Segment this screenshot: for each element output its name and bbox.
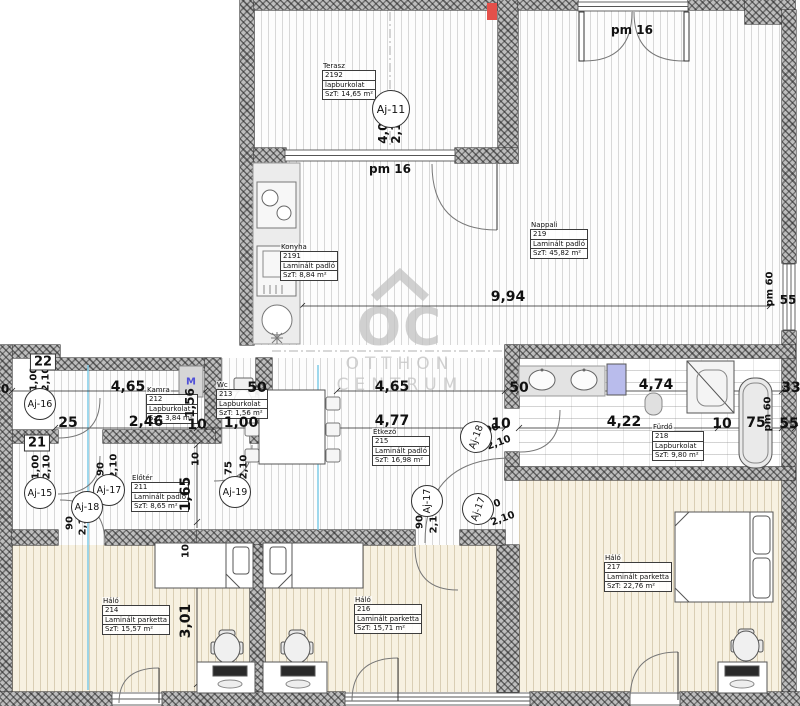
room-label-terasz: Terasz 2192 lapburkolat SzT: 14,65 m² bbox=[322, 62, 376, 100]
door-tag-aj16: Aj-16 bbox=[24, 388, 56, 420]
room-floor: lapburkolat bbox=[323, 80, 375, 89]
dim-label: 4,74 bbox=[639, 377, 674, 393]
room-number: 2192 bbox=[323, 71, 375, 79]
position-number-box: 21 bbox=[24, 435, 50, 452]
desk-chair-216 bbox=[263, 630, 327, 693]
room-name: Háló bbox=[354, 596, 372, 604]
desk-chair-217 bbox=[718, 629, 767, 693]
room-label-nappali: Nappali 219 Laminált padló SzT: 45,82 m² bbox=[530, 221, 588, 259]
dim-label: 2,46 bbox=[129, 414, 164, 430]
dim-label: 90 bbox=[65, 516, 76, 530]
dim-label: 4,77 bbox=[375, 413, 410, 429]
room-label-halo-214: Háló 214 Laminált parketta SzT: 15,57 m² bbox=[102, 597, 170, 635]
room-name: Terasz bbox=[322, 62, 346, 70]
bed-214 bbox=[155, 543, 253, 588]
dim-label: pm 60 bbox=[763, 397, 774, 432]
room-label-konyha: Konyha 2191 Laminált padló SzT: 8,84 m² bbox=[280, 243, 338, 281]
dim-label: pm 16 bbox=[611, 23, 653, 37]
room-name: Fürdő bbox=[652, 423, 674, 431]
room-floor: Laminált padló bbox=[531, 239, 587, 248]
door-tag-aj15: Aj-15 bbox=[24, 477, 56, 509]
room-number: 2191 bbox=[281, 252, 337, 260]
room-number: 217 bbox=[605, 563, 671, 571]
dim-label: 55 bbox=[779, 416, 798, 432]
room-area: SzT: 14,65 m² bbox=[323, 89, 375, 98]
room-floor: Lapburkolat bbox=[653, 441, 703, 450]
room-area: SzT: 45,82 m² bbox=[531, 248, 587, 257]
room-label-halo-217: Háló 217 Laminált parketta SzT: 22,76 m² bbox=[604, 554, 672, 592]
door-tag-aj18: Aj-18 bbox=[71, 491, 103, 523]
dim-label: 4,22 bbox=[607, 414, 642, 430]
door-tag-aj17: Aj-17 bbox=[411, 485, 443, 517]
dim-label: 10 bbox=[181, 544, 192, 558]
room-floor: Laminált padló bbox=[373, 446, 429, 455]
dim-label: 1,00 bbox=[31, 455, 42, 480]
dim-label: 0 bbox=[1, 382, 9, 396]
dim-label: 75 bbox=[224, 461, 235, 475]
floor-plan: OC OTTHON CENTRUM bbox=[0, 0, 800, 706]
washing-machine-label: M bbox=[186, 377, 196, 388]
room-number: 215 bbox=[373, 437, 429, 445]
room-number: 219 bbox=[531, 230, 587, 238]
door-tag-aj19: Aj-19 bbox=[219, 476, 251, 508]
room-number: 216 bbox=[355, 605, 421, 613]
room-name: Előtér bbox=[131, 474, 154, 482]
position-number-box: 22 bbox=[30, 354, 56, 371]
dim-label: 90 bbox=[415, 515, 426, 529]
dim-label: 4,65 bbox=[111, 379, 146, 395]
dim-label: 2,10 bbox=[239, 455, 250, 480]
room-name: Wc bbox=[216, 381, 229, 389]
room-number: 214 bbox=[103, 606, 169, 614]
desk-chair-214 bbox=[197, 630, 255, 693]
room-name: Kamra bbox=[146, 386, 171, 394]
room-floor: Laminált parketta bbox=[605, 572, 671, 581]
room-name: Háló bbox=[604, 554, 622, 562]
dim-label: 50 bbox=[509, 380, 528, 396]
room-area: SzT: 15,71 m² bbox=[355, 623, 421, 632]
dim-label: 10 bbox=[191, 452, 202, 466]
bed-217 bbox=[675, 512, 773, 602]
room-area: SzT: 15,57 m² bbox=[103, 624, 169, 633]
room-area: SzT: 8,84 m² bbox=[281, 270, 337, 279]
dim-label: 4,65 bbox=[375, 379, 410, 395]
room-label-halo-216: Háló 216 Laminált parketta SzT: 15,71 m² bbox=[354, 596, 422, 634]
room-area: SzT: 9,80 m² bbox=[653, 450, 703, 459]
dim-label: 10 bbox=[187, 417, 206, 433]
dim-label: 55 bbox=[780, 293, 797, 307]
room-name: Háló bbox=[102, 597, 120, 605]
room-label-furdo: Fürdő 218 Lapburkolat SzT: 9,80 m² bbox=[652, 423, 704, 461]
dim-label: pm 60 bbox=[765, 272, 776, 307]
room-floor: Laminált parketta bbox=[103, 615, 169, 624]
dim-label: 25 bbox=[58, 415, 77, 431]
dim-label: 3,01 bbox=[178, 604, 194, 639]
room-name: Nappali bbox=[530, 221, 559, 229]
room-label-etkezo: Étkező 215 Laminált padló SzT: 16,98 m² bbox=[372, 428, 430, 466]
dim-label: pm 16 bbox=[369, 162, 411, 176]
room-floor: Laminált parketta bbox=[355, 614, 421, 623]
room-name: Konyha bbox=[280, 243, 308, 251]
dim-label: 2,10 bbox=[42, 455, 53, 480]
room-name: Étkező bbox=[372, 428, 397, 436]
room-area: SzT: 22,76 m² bbox=[605, 581, 671, 590]
dim-label: 10 bbox=[712, 416, 731, 432]
dim-label: 33 bbox=[781, 380, 800, 396]
axis-lines bbox=[272, 12, 503, 351]
dim-label: 50 bbox=[247, 380, 266, 396]
dim-label: 9,94 bbox=[491, 289, 526, 305]
room-area: SzT: 16,98 m² bbox=[373, 455, 429, 464]
room-floor: Lapburkolat bbox=[217, 399, 267, 408]
dim-label: 1,00 bbox=[224, 415, 259, 431]
bed-216 bbox=[263, 543, 363, 588]
red-marker bbox=[487, 3, 497, 20]
room-floor: Laminált padló bbox=[281, 261, 337, 270]
dim-label: 1,56 bbox=[183, 388, 197, 418]
door-tag-aj11: Aj-11 bbox=[372, 90, 410, 128]
dim-label: 1,65 bbox=[178, 477, 194, 512]
room-number: 218 bbox=[653, 432, 703, 440]
